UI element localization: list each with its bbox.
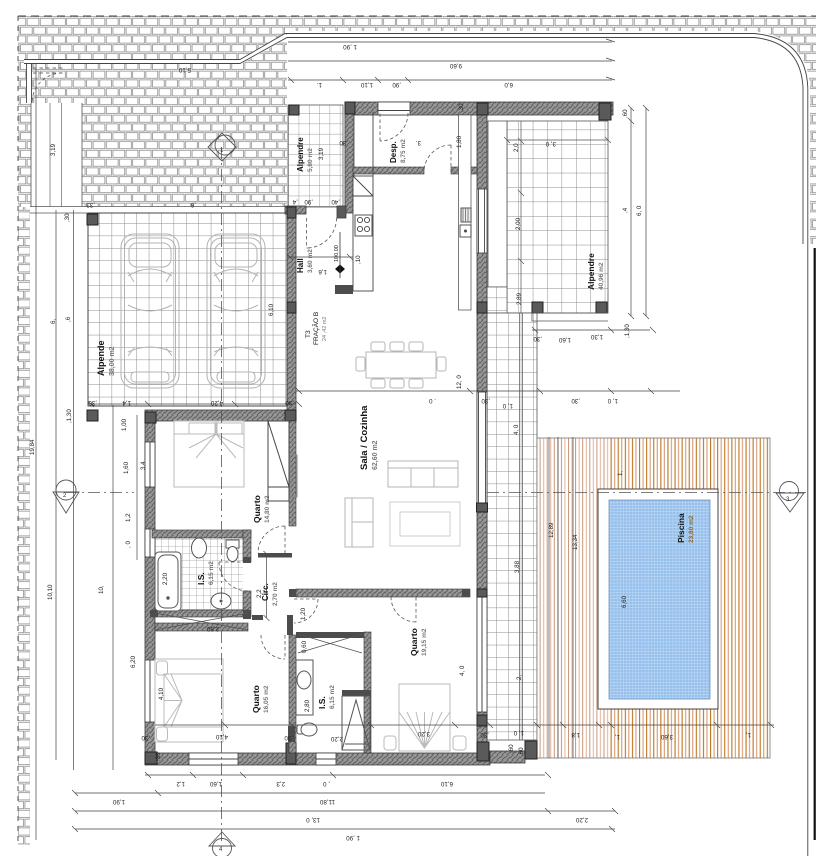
svg-text:62,60 m2: 62,60 m2 [372,440,379,470]
svg-text:2,20: 2,20 [330,735,343,742]
svg-text:6,60: 6,60 [621,595,628,608]
svg-text:1,: 1, [746,731,751,738]
svg-text:1,30: 1,30 [590,333,603,340]
svg-text:4, 0: 4, 0 [459,665,466,676]
svg-text:,30: ,30 [285,399,294,406]
svg-text:1 ,90: 1 ,90 [346,834,360,841]
svg-text:2,0: 2,0 [513,143,520,152]
svg-text:,40: ,40 [331,198,340,205]
svg-text:,60: ,60 [518,747,525,756]
svg-text:6,0: 6,0 [504,81,513,88]
svg-text:,1,30: ,1,30 [624,324,631,338]
svg-text:4,10: 4,10 [215,733,228,740]
svg-text:19,84: 19,84 [29,439,36,455]
svg-text:Alpende: Alpende [96,340,106,376]
svg-text:1,: 1, [617,471,624,476]
svg-text:,10: ,10 [355,255,362,264]
svg-text:6,15 m2: 6,15 m2 [329,685,336,709]
svg-text:,4: ,4 [622,207,629,213]
svg-text:4,10: 4,10 [158,687,165,700]
svg-text:11,80: 11,80 [319,798,335,805]
svg-text:10,: 10, [98,585,105,594]
svg-text:,30: ,30 [141,734,150,741]
svg-text:Hall: Hall [296,258,305,273]
svg-text:4, 0: 4, 0 [513,424,520,435]
svg-text:Alpendre: Alpendre [586,253,596,290]
svg-text:19,15 m2: 19,15 m2 [421,628,428,656]
svg-text:1,00: 1,00 [121,418,128,431]
svg-text:,90: ,90 [392,81,401,88]
svg-text:1.: 1. [317,81,322,88]
svg-text:Quarto: Quarto [251,685,261,713]
svg-text:Piscina: Piscina [676,513,686,543]
svg-text:. 0: . 0 [429,397,436,404]
svg-text:1,60: 1,60 [123,461,130,474]
svg-text:1, 0: 1, 0 [502,402,513,409]
svg-text:13, 0: 13, 0 [306,816,320,823]
svg-text:,30: ,30 [339,139,348,146]
svg-text:,30: ,30 [88,399,97,406]
svg-text:2,2: 2,2 [256,589,263,598]
svg-text:1,60: 1,60 [209,780,222,787]
svg-text:,30: ,30 [284,734,293,741]
svg-text:1, 0: 1, 0 [513,729,524,736]
svg-text:38,00 m2: 38,00 m2 [109,346,116,376]
svg-text:FRAÇÃO B: FRAÇÃO B [311,312,320,345]
svg-text:3,19: 3,19 [318,147,325,160]
svg-text:2,20: 2,20 [162,572,169,585]
svg-text:2,89: 2,89 [516,292,523,305]
svg-text:1, 0: 1, 0 [607,397,618,404]
svg-text:, 0: , 0 [125,541,132,548]
svg-text:,30: ,30 [481,397,490,404]
svg-text:,60: ,60 [508,744,515,753]
svg-text:,30: ,30 [458,103,465,112]
svg-text:12,89: 12,89 [548,522,555,538]
svg-text:1 ,90: 1 ,90 [343,43,357,50]
svg-text:,6: ,6 [190,201,196,208]
svg-text:,30: ,30 [533,335,542,342]
svg-text:14,80 m2: 14,80 m2 [264,495,271,523]
svg-text:Alpendre: Alpendre [296,137,305,172]
svg-text:12, 0: 12, 0 [456,375,463,389]
svg-text:16,05 m2: 16,05 m2 [263,685,270,713]
svg-text:1,80: 1,80 [456,135,463,148]
svg-text:,60: ,60 [622,109,629,118]
svg-text:100.00: 100.00 [334,245,340,262]
svg-text:4,20: 4,20 [210,399,223,406]
svg-text:3.: 3. [416,139,421,146]
svg-text:9,60: 9,60 [449,62,462,69]
svg-text:2,80: 2,80 [304,699,311,712]
svg-text:1,20: 1,20 [300,607,307,620]
svg-text:3, 0: 3, 0 [545,140,556,147]
svg-text:3,88: 3,88 [514,560,521,573]
svg-text:,4: ,4 [292,198,298,205]
svg-text:Desp.: Desp. [389,141,398,163]
svg-text:Quarto: Quarto [409,628,419,656]
svg-text:5,10: 5,10 [178,66,191,73]
svg-text:1,: 1, [615,733,620,740]
svg-text:23,80 m2: 23,80 m2 [688,515,695,543]
svg-text:3,20: 3,20 [417,730,430,737]
svg-text:1,8: 1,8 [571,731,580,738]
svg-text:3,4: 3,4 [140,461,147,470]
svg-text:1,10: 1,10 [360,81,373,88]
svg-text:I.S.: I.S. [196,572,206,585]
svg-text:2,3: 2,3 [276,780,285,787]
svg-text:1,90: 1,90 [112,798,125,805]
svg-text:1,4: 1,4 [122,399,131,406]
svg-text:2,00: 2,00 [515,217,522,230]
svg-text:6,20: 6,20 [130,655,137,668]
svg-text:,90: ,90 [304,198,313,205]
svg-text:3,60 m2: 3,60 m2 [307,249,314,273]
svg-text:Sala / Cozinha: Sala / Cozinha [359,405,370,470]
svg-text:,30: ,30 [155,752,162,761]
svg-text:6,: 6, [50,319,57,324]
svg-text:1,2: 1,2 [176,780,185,787]
svg-text:6,15 m2: 6,15 m2 [208,561,215,585]
svg-text:2,20: 2,20 [575,816,588,823]
svg-text:,33: ,33 [86,201,95,208]
svg-text:1,2: 1,2 [125,513,132,522]
svg-text:1,60: 1,60 [558,336,571,343]
svg-text:1,6: 1,6 [318,268,327,275]
svg-text:,30: ,30 [64,213,71,222]
svg-text:0,60: 0,60 [301,640,308,653]
svg-text:2,70 m2: 2,70 m2 [272,582,279,606]
svg-text:6, 0: 6, 0 [636,205,643,216]
svg-text:,30: ,30 [571,397,580,404]
svg-text:Quarto: Quarto [252,495,262,523]
svg-text:2,80: 2,80 [206,625,219,632]
svg-text:13,34: 13,34 [572,534,579,550]
svg-text:3,60: 3,60 [660,733,673,740]
svg-text:3,19: 3,19 [50,143,57,156]
svg-text:,1,30: ,1,30 [66,409,73,423]
svg-text:10,10: 10,10 [47,584,54,600]
svg-text:40,96 m2: 40,96 m2 [598,262,605,290]
svg-text:6,10: 6,10 [440,780,453,787]
svg-text:, 0: , 0 [323,780,330,787]
svg-text:I.S.: I.S. [317,696,327,709]
svg-text:6,10: 6,10 [268,303,275,316]
svg-text:T3: T3 [305,330,312,338]
svg-text:24 ,42 m2: 24 ,42 m2 [322,317,328,341]
svg-text:,30: ,30 [480,731,489,738]
svg-text:5,80 m2: 5,80 m2 [307,148,314,172]
svg-text:8,75 m2: 8,75 m2 [400,139,407,163]
svg-text:2,: 2, [516,675,523,680]
svg-text:,6: ,6 [65,316,72,322]
